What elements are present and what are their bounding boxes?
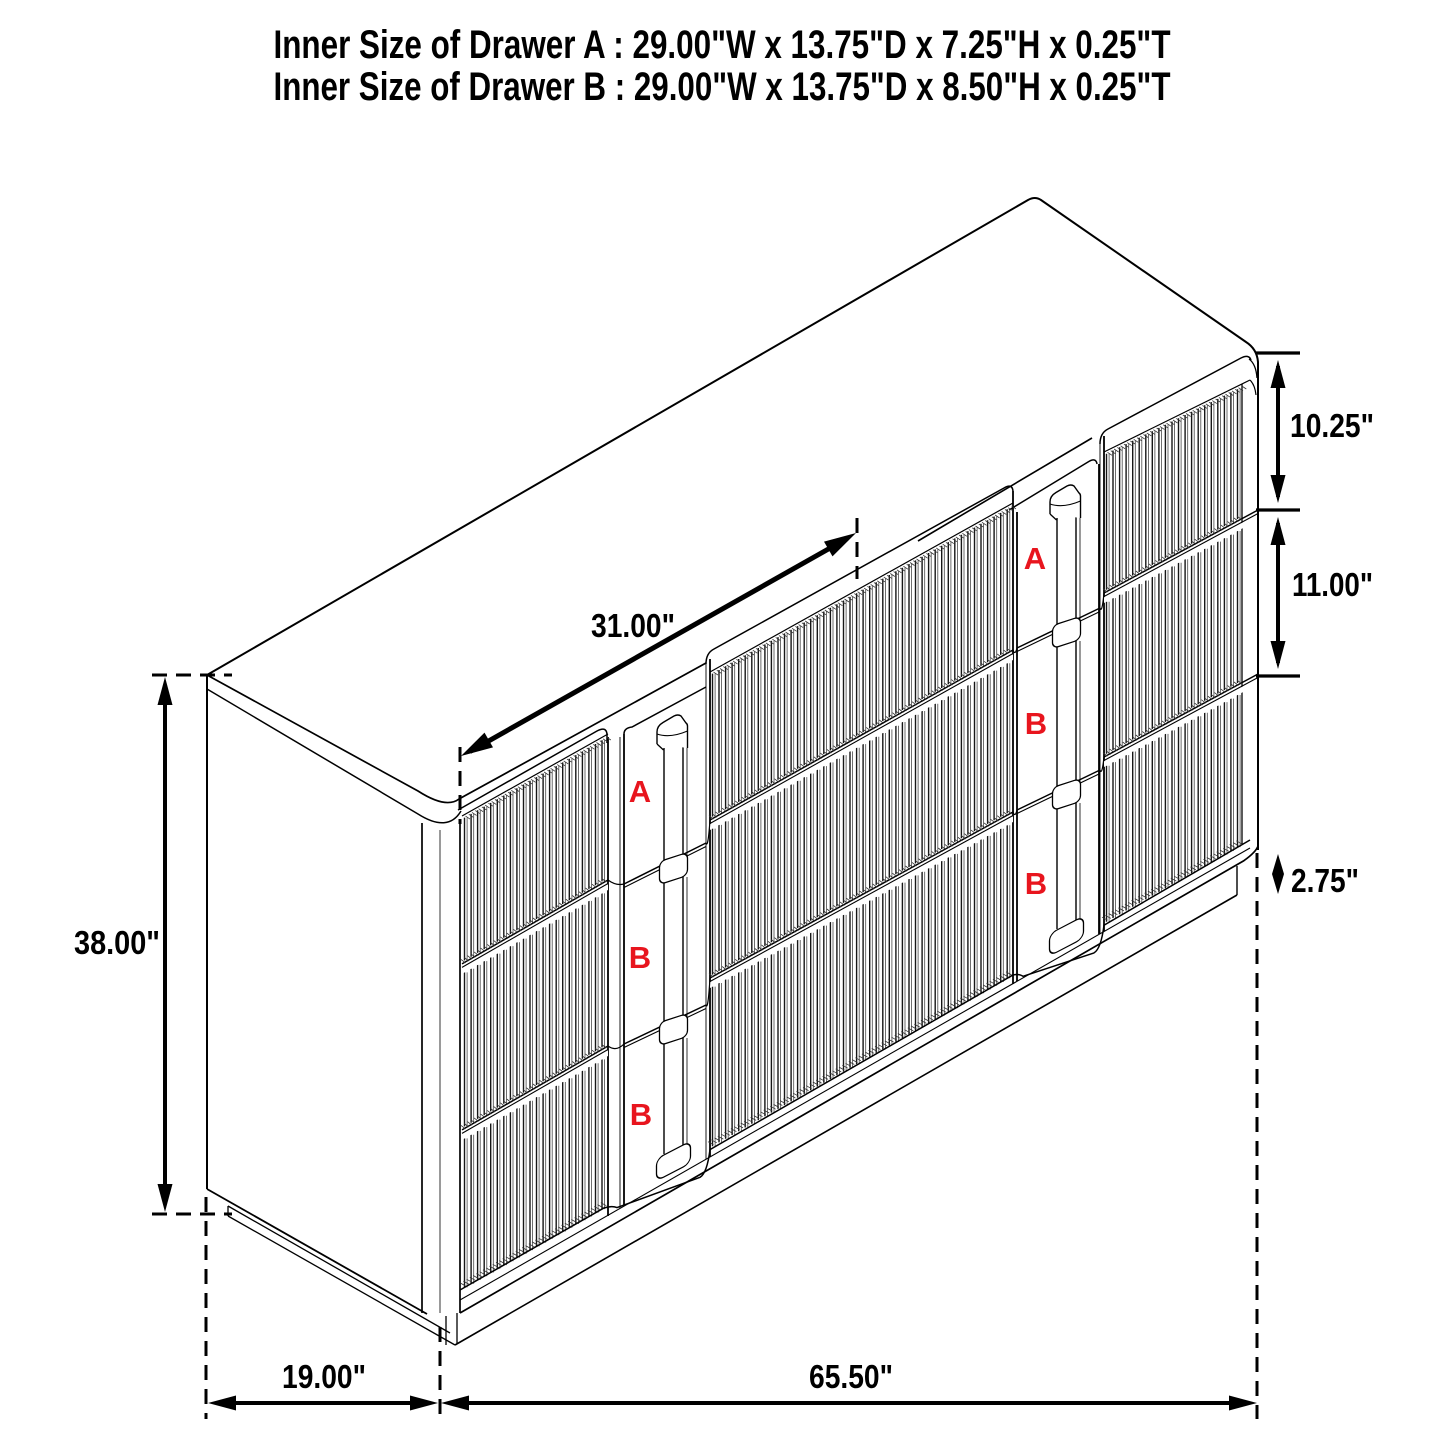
svg-text:Inner Size of Drawer A : 29.00: Inner Size of Drawer A : 29.00"W x 13.75… (274, 23, 1171, 67)
svg-text:11.00": 11.00" (1292, 566, 1373, 603)
svg-text:A: A (1024, 541, 1046, 576)
svg-text:Inner Size of Drawer B : 29.00: Inner Size of Drawer B : 29.00"W x 13.75… (274, 65, 1171, 109)
svg-text:31.00": 31.00" (591, 607, 675, 644)
svg-text:B: B (1025, 706, 1047, 741)
svg-text:B: B (1025, 866, 1047, 901)
svg-text:A: A (629, 774, 651, 809)
svg-text:19.00": 19.00" (282, 1358, 366, 1395)
svg-text:10.25": 10.25" (1290, 407, 1374, 444)
svg-text:65.50": 65.50" (809, 1358, 893, 1395)
svg-text:B: B (630, 1097, 652, 1132)
svg-text:38.00": 38.00" (74, 924, 160, 961)
svg-text:2.75": 2.75" (1291, 862, 1359, 899)
svg-text:B: B (629, 940, 651, 975)
